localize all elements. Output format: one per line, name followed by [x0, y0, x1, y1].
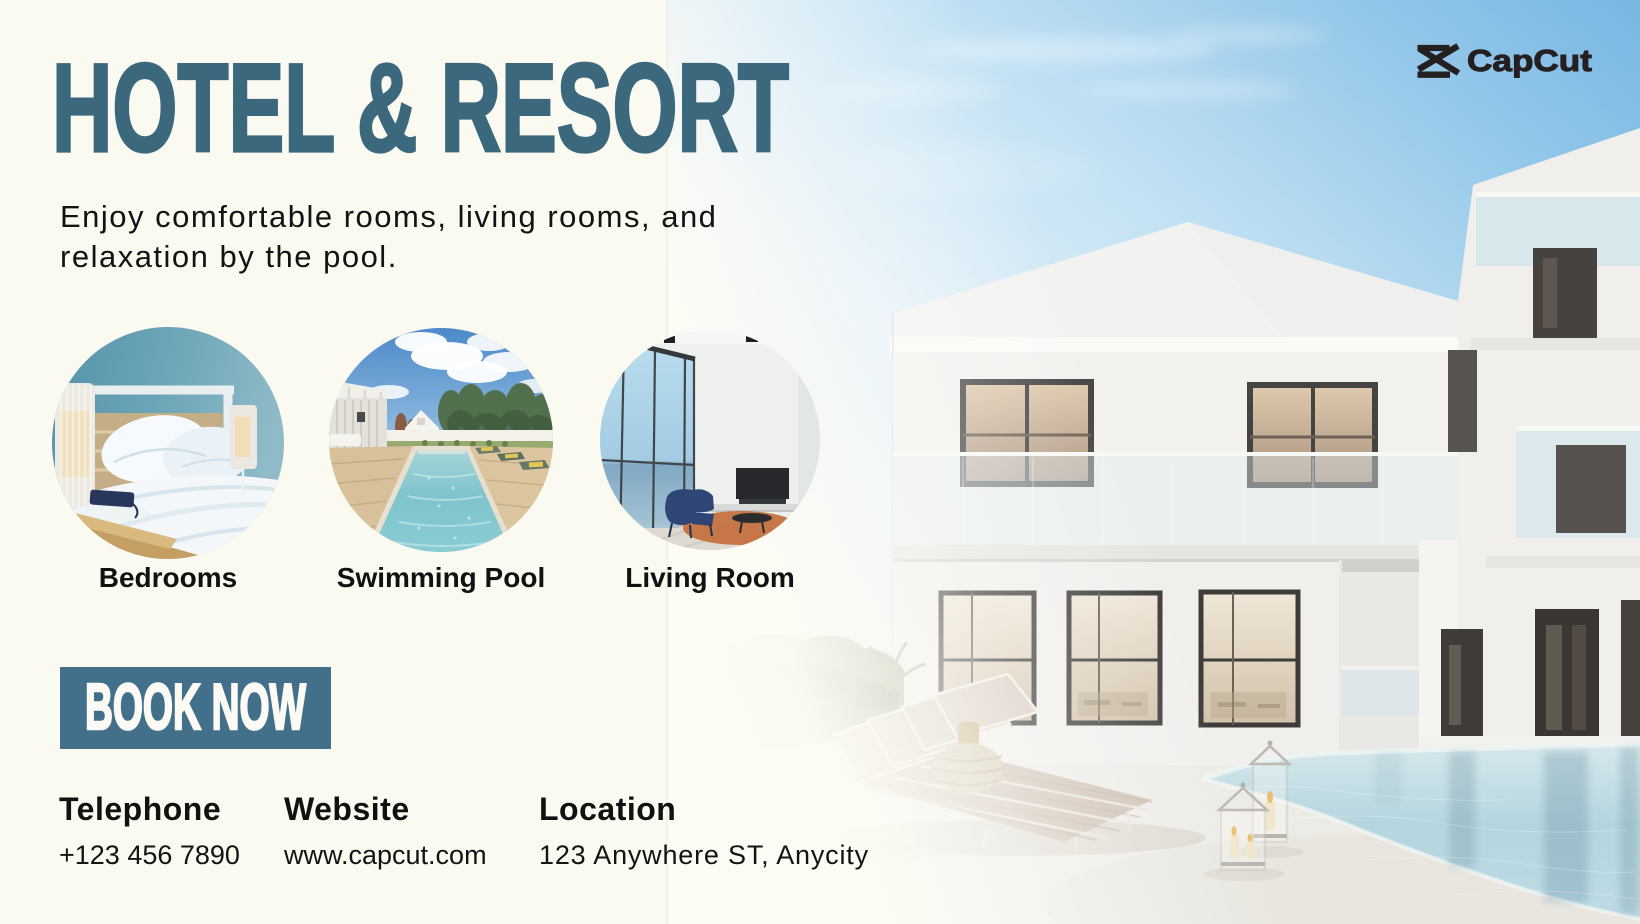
svg-text:CapCut: CapCut: [1467, 43, 1592, 78]
svg-text:BOOK NOW: BOOK NOW: [85, 670, 306, 743]
svg-text:HOTEL & RESORT: HOTEL & RESORT: [52, 39, 789, 177]
